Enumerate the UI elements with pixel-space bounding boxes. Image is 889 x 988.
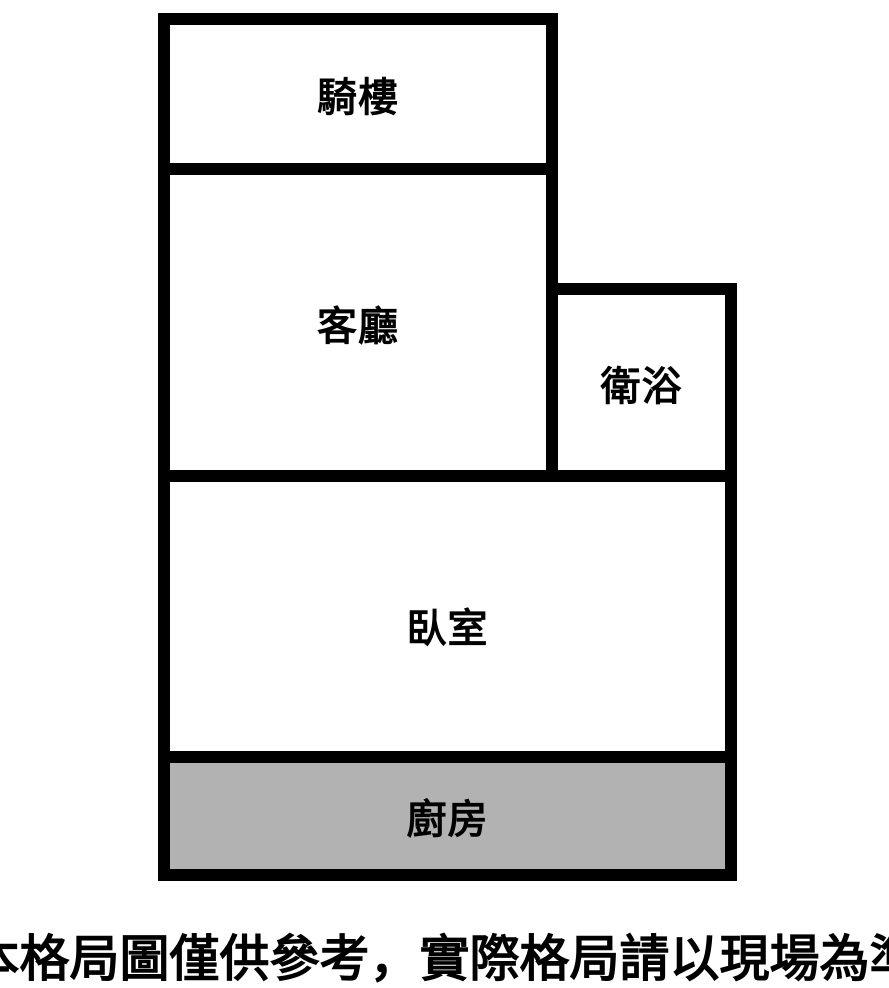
room-bedroom: 臥室 xyxy=(170,482,725,751)
room-arcade: 騎樓 xyxy=(170,25,546,163)
room-kitchen: 廚房 xyxy=(170,763,725,869)
room-living: 客廳 xyxy=(170,175,546,470)
wall-bottom xyxy=(158,869,737,881)
room-living-label: 客廳 xyxy=(317,294,399,352)
floorplan-canvas: 騎樓 客廳 衛浴 臥室 廚房 本格局圖僅供參考，實際格局請以現場為準 xyxy=(0,0,889,988)
disclaimer-caption: 本格局圖僅供參考，實際格局請以現場為準 xyxy=(0,922,889,988)
wall-top xyxy=(158,13,558,25)
room-bathroom-label: 衛浴 xyxy=(601,354,683,412)
room-kitchen-label: 廚房 xyxy=(407,787,489,845)
wall-bathroom-top xyxy=(546,283,737,295)
wall-divider-bedroom-kitchen xyxy=(158,751,737,763)
wall-divider-bedroom-top xyxy=(158,470,737,482)
disclaimer-caption-text: 本格局圖僅供參考，實際格局請以現場為準 xyxy=(0,919,889,988)
room-bathroom: 衛浴 xyxy=(558,295,725,470)
room-bedroom-label: 臥室 xyxy=(407,596,489,654)
room-arcade-label: 騎樓 xyxy=(317,65,399,123)
wall-divider-arcade-living xyxy=(158,163,558,175)
wall-right-upper xyxy=(546,13,558,482)
wall-right-lower xyxy=(725,283,737,881)
